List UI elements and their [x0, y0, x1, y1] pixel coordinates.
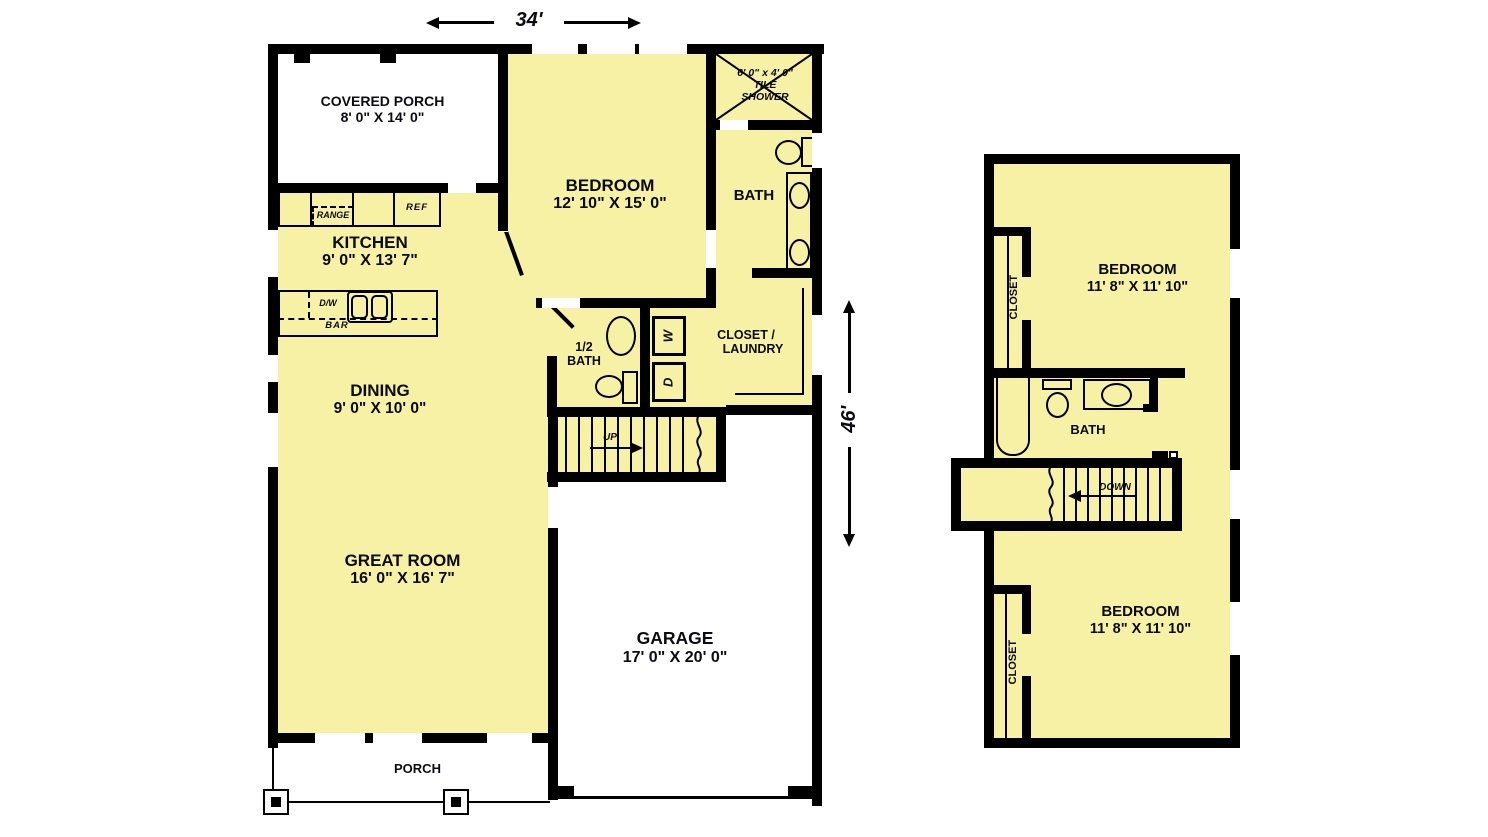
stair-newel	[1152, 451, 1168, 459]
wall	[547, 472, 726, 482]
kitchen-sink-bowl	[351, 295, 368, 319]
window	[532, 44, 578, 54]
wall	[498, 44, 508, 231]
floor2-stair-landing	[955, 466, 1055, 523]
wall	[1143, 404, 1158, 412]
wall	[951, 458, 1182, 468]
garage-label: GARAGE17' 0" X 20' 0"	[595, 629, 755, 667]
stair-tread	[669, 417, 671, 472]
dim-line	[564, 21, 628, 24]
porch-rail	[272, 801, 550, 803]
wall	[984, 154, 994, 460]
bedroom-label: BEDROOM12' 10" X 15' 0"	[515, 176, 705, 213]
door-opening	[548, 487, 558, 528]
stair-tread	[682, 417, 684, 472]
half-bath-label: 1/2BATH	[558, 340, 610, 368]
window	[268, 355, 278, 382]
toilet	[775, 140, 802, 165]
window	[268, 230, 278, 277]
height-dimension: 46'	[838, 394, 860, 444]
closet-laundry-label: CLOSET /LAUNDRY	[690, 328, 802, 356]
porch-column	[443, 789, 469, 815]
wall	[1022, 236, 1031, 277]
width-dimension: 34'	[494, 9, 564, 31]
floor-plan-canvas: COVERED PORCH8' 0" X 14' 0" BEDROOM12' 1…	[0, 0, 1488, 837]
bedroom-top-label: BEDROOM11' 8" X 11' 10"	[1050, 262, 1225, 295]
door-opening	[706, 230, 716, 268]
toilet	[606, 316, 636, 356]
bath-label: BATH	[724, 188, 784, 205]
stair-tread	[1147, 468, 1149, 521]
wall	[1230, 154, 1240, 748]
closet-shelf-line	[802, 288, 804, 395]
vanity	[622, 371, 638, 404]
bath-sink	[789, 239, 810, 266]
bath-sink	[789, 182, 810, 209]
window	[268, 413, 278, 467]
up-arrow-head	[630, 442, 643, 454]
dim-line	[848, 447, 851, 534]
closet-top-label: CLOSET	[1008, 269, 1020, 325]
wall	[548, 786, 574, 799]
wall	[1022, 676, 1031, 738]
porch-column	[263, 789, 289, 815]
dim-line	[848, 313, 851, 393]
dim-arrow-right	[628, 17, 641, 29]
toilet-shelf	[1042, 379, 1072, 390]
bathtub	[996, 372, 1030, 456]
stair-tread	[591, 417, 593, 472]
up-label: UP	[595, 432, 625, 443]
window	[1230, 602, 1240, 655]
wall	[989, 585, 1031, 594]
porch-label: PORCH	[385, 762, 450, 777]
wall	[788, 786, 814, 799]
up-arrow-line	[590, 447, 632, 449]
wall	[984, 738, 1240, 748]
range-label: RANGE	[312, 210, 354, 220]
window	[315, 733, 365, 743]
wall	[726, 405, 820, 415]
wall	[716, 407, 726, 482]
wall	[547, 407, 726, 417]
stair-tread	[565, 417, 567, 472]
garage-door-line	[558, 796, 812, 799]
door-opening	[542, 298, 580, 308]
window	[1230, 470, 1240, 519]
toilet	[1046, 392, 1069, 418]
dim-arrow-down	[843, 534, 855, 547]
wall	[268, 44, 278, 748]
stair-tread	[1063, 468, 1065, 521]
door-opening	[448, 183, 476, 193]
tile-shower-label: 6' 0" x 4' 0"TILESHOWER	[718, 68, 812, 103]
stair-tread	[1159, 468, 1161, 521]
closet-shelf-line	[735, 393, 804, 395]
wall	[984, 529, 994, 748]
stair-break-line	[1044, 466, 1058, 522]
wall	[640, 308, 650, 417]
porch-post	[380, 54, 396, 63]
sink	[595, 375, 623, 398]
wall	[1172, 458, 1182, 531]
stair-tread	[604, 417, 606, 472]
kitchen-sink-bowl	[371, 295, 388, 319]
porch-post	[294, 54, 310, 63]
dim-arrow-up	[843, 300, 855, 313]
down-label: DOWN	[1094, 482, 1136, 493]
window	[639, 44, 687, 54]
wall	[1022, 594, 1031, 634]
dw-label: D/W	[310, 298, 346, 308]
stair-break-line	[692, 415, 706, 473]
stair-newel-post	[1169, 451, 1178, 459]
bath-sink	[1101, 383, 1132, 407]
window	[487, 733, 532, 743]
wall	[706, 44, 716, 308]
wall	[1022, 320, 1031, 370]
wall	[989, 227, 1031, 236]
window	[812, 315, 822, 375]
stair-tread	[656, 417, 658, 472]
dining-label: DINING9' 0" X 10' 0"	[305, 381, 455, 417]
ref-label: REF	[395, 203, 439, 214]
window	[373, 733, 422, 743]
stair-tread	[643, 417, 645, 472]
wall	[984, 154, 1240, 164]
wall	[752, 268, 820, 278]
window	[587, 44, 635, 54]
dryer-label: D	[662, 362, 677, 402]
covered-porch-label: COVERED PORCH8' 0" X 14' 0"	[300, 94, 465, 125]
door-opening	[498, 231, 508, 232]
garage-area-upper	[726, 415, 812, 482]
great-room-label: GREAT ROOM16' 0" X 16' 7"	[305, 551, 500, 588]
bedroom-bottom-label: BEDROOM11' 8" X 11' 10"	[1053, 604, 1228, 637]
window	[1230, 249, 1240, 298]
closet-bottom-label: CLOSET	[1007, 634, 1019, 690]
stair-tread	[617, 417, 619, 472]
door-opening	[720, 120, 748, 130]
washer-label: W	[662, 316, 677, 356]
dim-line	[438, 21, 494, 24]
wall	[951, 521, 1182, 531]
kitchen-label: KITCHEN9' 0" X 13' 7"	[295, 233, 445, 270]
window	[812, 133, 822, 168]
bar-label: BAR	[307, 321, 367, 332]
stair-tread	[578, 417, 580, 472]
down-arrow-line	[1080, 495, 1136, 497]
bath2-label: BATH	[1058, 423, 1118, 438]
